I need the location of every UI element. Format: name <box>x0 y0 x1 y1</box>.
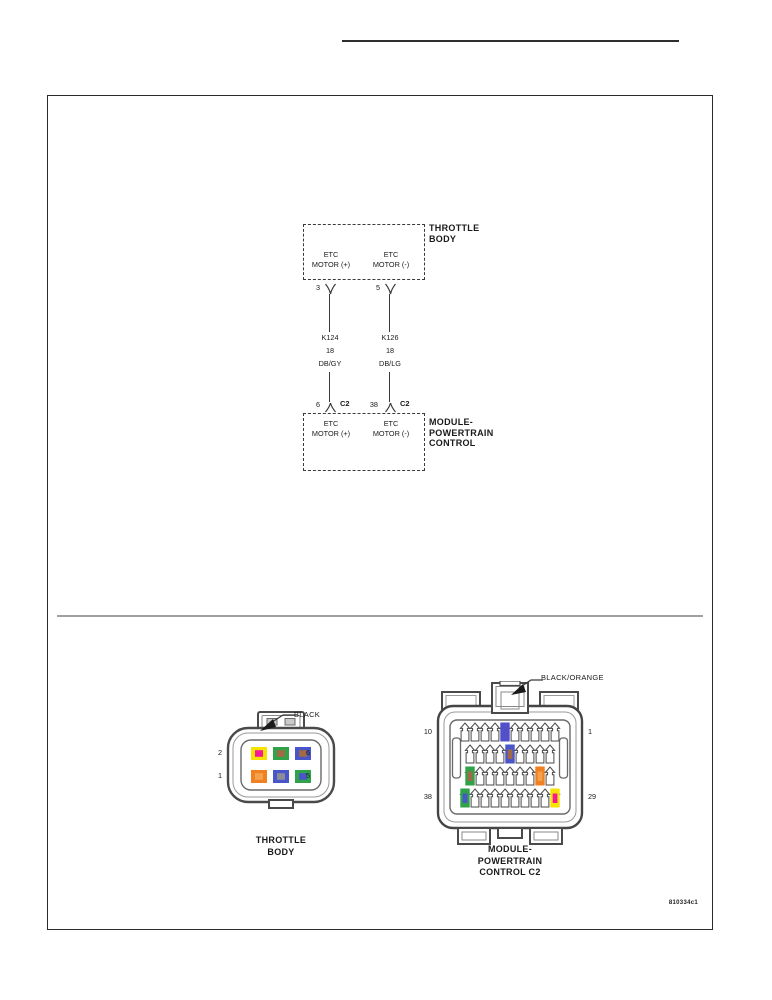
connector-junction-icon <box>384 283 397 295</box>
pcm-corner-pin-29: 29 <box>588 792 602 801</box>
pcm-corner-pin-38: 38 <box>414 792 432 801</box>
header-rule <box>342 40 679 42</box>
pcm-connector-color-label: BLACK/ORANGE <box>541 673 604 682</box>
tb-pin-number-left: 3 <box>310 283 320 292</box>
pcm-pin-number-left: 6 <box>306 400 320 409</box>
wire-k124-lower <box>329 372 330 402</box>
tb-pin-number-right: 5 <box>370 283 380 292</box>
wiring-diagram-page: THROTTLEBODY ETCMOTOR (+) ETCMOTOR (-) 3… <box>0 0 772 1000</box>
pcm-keyway-right <box>560 738 568 778</box>
wire-label-k126: K12618DB/LG <box>363 331 417 370</box>
pcm-keyway-left <box>453 738 461 778</box>
pcm-connector-caption: MODULE-POWERTRAINCONTROL C2 <box>436 844 584 879</box>
wire-k126-upper <box>389 294 390 332</box>
arrow-icon <box>256 712 296 734</box>
pcm-connector-ref-right: C2 <box>400 399 410 408</box>
connector-junction-icon <box>324 402 337 413</box>
pcm-connector-drawing <box>436 681 584 849</box>
pcm-corner-pin-1: 1 <box>588 727 600 736</box>
tb-signal-left: ETCMOTOR (+) <box>304 250 358 269</box>
wire-label-k124: K12418DB/GY <box>303 331 357 370</box>
tb-signal-right: ETCMOTOR (-) <box>364 250 418 269</box>
throttle-body-title-line2: BODY <box>429 234 456 244</box>
document-code: 810334c1 <box>642 900 698 906</box>
pcm-connector-ref-left: C2 <box>340 399 350 408</box>
wire-k124-upper <box>329 294 330 332</box>
pcm-title: MODULE-POWERTRAINCONTROL <box>429 417 494 449</box>
tb-connector-caption: THROTTLEBODY <box>224 835 338 858</box>
arrow-icon <box>506 676 544 698</box>
tb-corner-pin-1: 1 <box>210 771 222 780</box>
figure-border <box>47 95 713 930</box>
throttle-body-title-line1: THROTTLE <box>429 223 479 233</box>
connector-junction-icon <box>324 283 337 295</box>
pcm-signal-left: ETCMOTOR (+) <box>304 419 358 438</box>
tb-connector-color-label: BLACK <box>294 710 320 719</box>
tb-corner-pin-5: 5 <box>306 771 318 780</box>
throttle-body-title: THROTTLEBODY <box>429 223 479 244</box>
pcm-pin-number-right: 38 <box>362 400 378 409</box>
tb-corner-pin-6: 6 <box>306 748 318 757</box>
pcm-signal-right: ETCMOTOR (-) <box>364 419 418 438</box>
tb-bottom-tab <box>269 800 293 808</box>
connector-junction-icon <box>384 402 397 413</box>
tb-corner-pin-2: 2 <box>210 748 222 757</box>
pcm-corner-pin-10: 10 <box>416 727 432 736</box>
section-divider <box>57 615 703 617</box>
wire-k126-lower <box>389 372 390 402</box>
